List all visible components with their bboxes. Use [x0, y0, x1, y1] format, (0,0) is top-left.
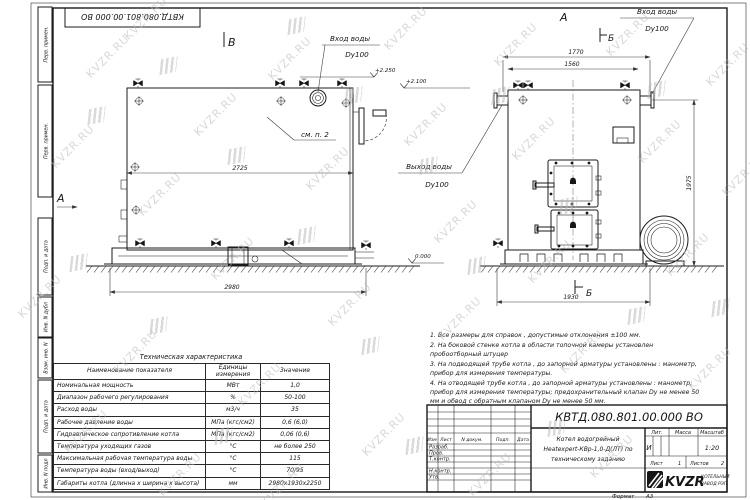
svg-text:N докум.: N докум.	[461, 437, 482, 443]
tech-table-title: Техническая характеристика	[53, 353, 329, 361]
boiler-side-view: 2725 2980	[104, 79, 386, 296]
scale-value: 1:20	[705, 444, 720, 452]
elev-2250: +2.250	[375, 68, 396, 74]
svg-text:Листов: Листов	[689, 461, 709, 467]
ground-right	[480, 266, 724, 273]
col-header-value: Значение	[261, 364, 330, 380]
view-label-a-left: А	[56, 192, 65, 205]
tech-table-row: Номинальная мощностьМВт1,0	[54, 380, 330, 392]
margin-stamp-label: Взам. инв. N	[44, 342, 50, 374]
tech-table-row: Рабочее давление водыМПа (кгс/см2)0,6 (6…	[54, 416, 330, 428]
section-b-bottom: Б	[586, 289, 592, 299]
tech-table-row: Габариты котла (длинна х ширина х высота…	[54, 477, 330, 489]
tech-table-row: Диапазон рабочего регулирования%50-100	[54, 392, 330, 404]
svg-text:Дата: Дата	[516, 437, 529, 443]
product-name-3: техническому заданию	[551, 456, 625, 463]
outlet-elbow	[353, 108, 386, 144]
col-header-units: Единицы измерения	[206, 364, 261, 380]
company-line2: ЗАВОД РЭП	[701, 481, 728, 487]
section-b-top: Б	[608, 34, 614, 44]
callout-inlet-left: Вход воды Dy100	[318, 34, 380, 92]
svg-text:Утв.: Утв.	[429, 475, 440, 481]
drawing-notes: 1. Все размеры для справок , допустимые …	[430, 332, 706, 408]
format-label: Формат	[612, 494, 635, 500]
dim-1560: 1560	[564, 61, 579, 68]
left-margin-stamps: Перв. примен.Перв. примен.Подп. и датаИн…	[38, 7, 52, 492]
margin-stamp-label: Перв. примен.	[44, 26, 50, 62]
svg-text:см. п. 2: см. п. 2	[301, 130, 329, 139]
lit-value: И	[646, 444, 652, 452]
mass-label: Масса	[675, 430, 691, 436]
company-line1: КОТЕЛЬНЫЙ	[701, 473, 730, 480]
doc-number: КВТД.080.801.00.000 ВО	[555, 410, 703, 424]
svg-text:Выход воды: Выход воды	[406, 162, 452, 171]
svg-text:2: 2	[721, 461, 724, 467]
elev-2100: +2.100	[406, 79, 427, 85]
view-label-a-top: А	[559, 11, 568, 24]
margin-stamp-label: Инв. N подл	[44, 458, 50, 488]
svg-text:Вход воды: Вход воды	[637, 7, 677, 16]
doc-number-top-box: КВТД.080.801.00.000 ВО	[65, 8, 200, 27]
scale-label: Масштаб	[700, 430, 724, 436]
dim-2980: 2980	[224, 284, 239, 291]
margin-stamp-label: Инв. N дубл	[44, 302, 50, 332]
callout-outlet: Выход воды Dy100	[398, 105, 502, 189]
svg-text:1: 1	[678, 461, 681, 467]
callout-see-note: см. п. 2	[267, 117, 336, 140]
kvzr-logo-text: KVZR	[665, 475, 705, 490]
product-name-1: Котел водогрейный	[557, 436, 620, 443]
col-header-name: Наименование показателя	[54, 364, 206, 380]
product-name-2: Heatexpert-КВр-1,0-Д(ЛТ) по	[543, 446, 632, 453]
dim-2725: 2725	[232, 165, 247, 172]
callout-inlet-right: Вход воды Dy100	[620, 7, 694, 94]
svg-text:Dy100: Dy100	[645, 24, 669, 33]
dim-1975: 1975	[686, 175, 693, 190]
svg-text:Dy100: Dy100	[425, 180, 449, 189]
tech-table-row: Температура уходящих газов°Сне более 250	[54, 440, 330, 452]
svg-text:Т.контр.: Т.контр.	[429, 457, 451, 463]
note-line: 3. На подводящей трубе котла , до запорн…	[430, 361, 706, 379]
note-line: 2. На боковой стенке котла в области топ…	[430, 342, 706, 360]
note-line: 4. На отводящей трубе котла , до запорно…	[430, 380, 706, 407]
doc-number-top: КВТД.080.801.00.000 ВО	[81, 12, 184, 21]
note-line: 1. Все размеры для справок , допустимые …	[430, 332, 706, 341]
tech-table-grid: Наименование показателя Единицы измерени…	[53, 363, 330, 490]
tech-table-row: Максимальная рабочая температура воды°С1…	[54, 453, 330, 465]
lower-door	[535, 210, 601, 249]
svg-text:Подп.: Подп.	[496, 437, 510, 443]
svg-text:Изм: Изм	[427, 437, 437, 443]
tech-table-row: Расход водым3/ч35	[54, 404, 330, 416]
svg-text:Вход воды: Вход воды	[330, 34, 370, 43]
svg-text:Dy100: Dy100	[345, 50, 369, 59]
tech-table: Техническая характеристика Наименование …	[53, 353, 329, 490]
blower-fan	[640, 216, 688, 266]
ground-left	[86, 266, 420, 273]
lit-label: Лит.	[650, 430, 663, 436]
tech-table-row: Гидравлическое сопротивление котлаМПа (к…	[54, 428, 330, 440]
elev-0000: 0.000	[415, 254, 431, 260]
margin-stamp-label: Подп. и дата	[44, 240, 50, 273]
upper-door	[533, 160, 601, 207]
drawing-sheet: КВТД.080.801.00.000 ВО Перв. примен.Перв…	[0, 0, 750, 500]
kvzr-logo-icon	[647, 471, 663, 488]
dim-1930: 1930	[563, 294, 578, 301]
tech-table-row: Температура воды (вход/выход)°С70/95	[54, 465, 330, 477]
margin-stamp-label: Подп. и дата	[44, 400, 50, 433]
inlet-flange	[310, 90, 326, 106]
svg-text:Лист: Лист	[649, 461, 664, 467]
view-label-b: В	[228, 36, 236, 49]
dim-1770: 1770	[568, 49, 583, 56]
format-value: А3	[645, 494, 654, 500]
margin-stamp-label: Перв. примен.	[44, 123, 50, 159]
svg-text:Лист: Лист	[439, 437, 452, 443]
title-block: КВТД.080.801.00.000 ВО Котел водогрейный…	[427, 405, 730, 492]
boiler-front-view: 1770 1560 1975 1930	[494, 49, 699, 306]
